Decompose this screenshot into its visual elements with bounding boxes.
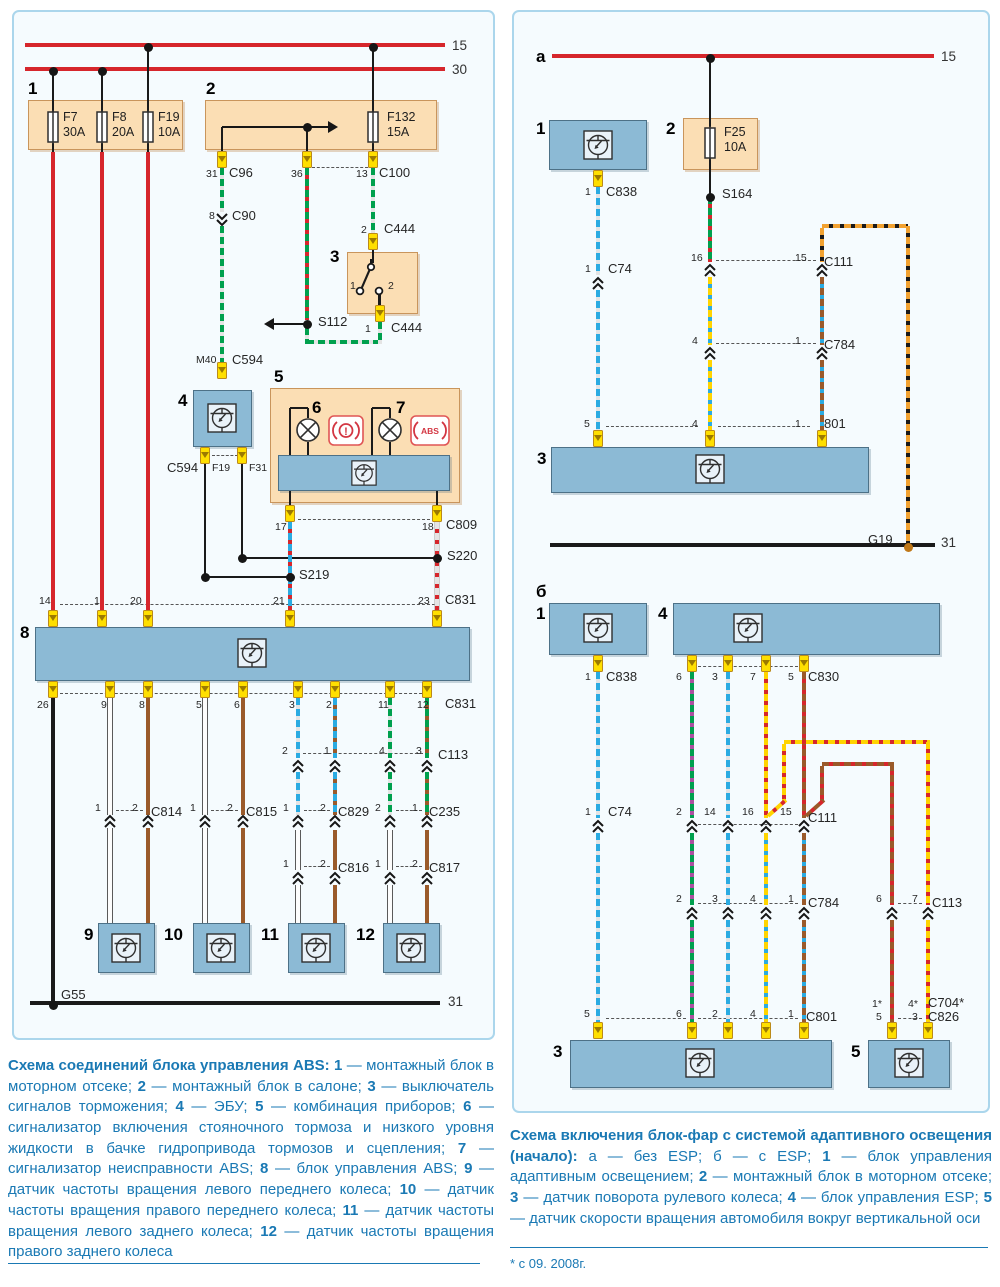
wire-cyan-white xyxy=(726,833,730,905)
wire-brown xyxy=(146,828,150,923)
inline-connector-icon xyxy=(884,905,900,921)
component-box xyxy=(683,118,758,170)
label-4: 4 xyxy=(692,336,698,348)
wire-brown-red xyxy=(890,764,894,905)
label-1: 1 xyxy=(788,894,794,906)
wire-ww xyxy=(295,830,301,870)
label-13: 13 xyxy=(356,169,368,181)
inline-connector-icon xyxy=(290,813,306,829)
label-10A: 10A xyxy=(724,141,746,155)
label-6: 6 xyxy=(676,672,682,684)
label-F8: F8 xyxy=(112,111,127,125)
label-14: 14 xyxy=(39,596,51,608)
label-4: 4 xyxy=(379,746,385,758)
warn1-icon: ! xyxy=(328,415,364,446)
wire-ww xyxy=(202,828,208,923)
label-C784: C784 xyxy=(824,338,855,352)
label-3: 3 xyxy=(537,450,546,469)
label-C100: C100 xyxy=(379,166,410,180)
connector-pin xyxy=(799,1022,809,1039)
wire-cyan-white xyxy=(726,920,730,1022)
label-C444: C444 xyxy=(384,222,415,236)
connector-pin xyxy=(687,1022,697,1039)
label-1: 1 xyxy=(585,187,591,199)
connector-pin xyxy=(97,610,107,627)
right-caption-rule xyxy=(510,1247,988,1248)
wire-red xyxy=(25,67,445,71)
wire-yellow-cyan xyxy=(708,360,712,430)
wire-yellow-cyan xyxy=(708,277,712,345)
connector-dash-line xyxy=(396,810,422,811)
connector-pin xyxy=(687,655,697,672)
wire-green-purple xyxy=(690,833,694,905)
connector-pin xyxy=(923,1022,933,1039)
label-31: 31 xyxy=(206,169,218,181)
wire-yellow-red xyxy=(782,744,786,802)
inline-connector-icon xyxy=(702,262,718,278)
label-1: 1 xyxy=(94,596,100,608)
unit-box xyxy=(673,603,940,655)
inline-connector-icon xyxy=(758,818,774,834)
label-3: 3 xyxy=(289,700,295,712)
wire-cyan-brown xyxy=(333,772,337,815)
connector-dash-line xyxy=(298,519,430,520)
label-6: 6 xyxy=(234,700,240,712)
junction-dot xyxy=(433,554,442,563)
wire-thin xyxy=(289,491,291,505)
connector-pin xyxy=(723,655,733,672)
connector-dash-line xyxy=(396,866,422,867)
label-4: 4 xyxy=(750,1009,756,1021)
connector-dash-line xyxy=(606,1018,686,1019)
label-10A: 10A xyxy=(158,126,180,140)
label-16: 16 xyxy=(691,253,703,265)
wire-thin xyxy=(372,407,390,409)
label-30: 30 xyxy=(452,63,467,78)
junction-dot xyxy=(286,573,295,582)
label-C815: C815 xyxy=(246,805,277,819)
connector-dash-line xyxy=(898,1018,922,1019)
junction-dot xyxy=(369,43,378,52)
connector-dash-line xyxy=(898,903,922,904)
connector-pin xyxy=(285,610,295,627)
label-S220: S220 xyxy=(447,549,477,563)
wire-brown xyxy=(333,830,337,870)
label-G19: G19 xyxy=(868,533,893,547)
label-15: 15 xyxy=(452,39,467,54)
wire-green-purple xyxy=(690,672,694,818)
inline-connector-icon xyxy=(419,758,435,774)
label-4: 4 xyxy=(178,392,187,411)
right-panel xyxy=(512,10,990,1113)
wire-cyan-white xyxy=(596,672,600,818)
connector-pin xyxy=(238,681,248,698)
label-3: 3 xyxy=(553,1043,562,1062)
inline-connector-icon xyxy=(590,818,606,834)
wire-brown xyxy=(241,698,245,815)
wire-brown-red xyxy=(820,766,824,802)
label-6: 6 xyxy=(312,399,321,418)
wire-green-white xyxy=(378,322,382,344)
label-5: 5 xyxy=(196,700,202,712)
connector-pin xyxy=(200,681,210,698)
connector-pin xyxy=(217,362,227,379)
connector-dash-line xyxy=(211,810,238,811)
wire-ww xyxy=(202,698,208,815)
wire-green-purple xyxy=(690,920,694,1022)
ecu-icon xyxy=(396,933,426,963)
label-F19: F19 xyxy=(212,463,230,475)
wire-red xyxy=(100,152,104,612)
page: !ABS153031123456789101112F730AF820AF1910… xyxy=(0,0,1000,1287)
connector-dash-line xyxy=(303,753,423,754)
label-11: 11 xyxy=(261,926,279,945)
wire-thin xyxy=(221,127,223,152)
connector-pin xyxy=(385,681,395,698)
label-3: 3 xyxy=(330,248,339,267)
wire-thin xyxy=(147,47,149,112)
label-15: 15 xyxy=(780,807,792,819)
label-5: 5 xyxy=(876,1012,882,1024)
connector-pin xyxy=(302,151,312,168)
label-C96: C96 xyxy=(229,166,253,180)
connector-pin xyxy=(143,610,153,627)
label-5: 5 xyxy=(851,1043,860,1062)
inline-connector-icon xyxy=(382,758,398,774)
label-31: 31 xyxy=(941,536,956,551)
fuse-icon xyxy=(95,110,109,144)
label-23: 23 xyxy=(418,596,430,608)
connector-pin xyxy=(375,305,385,322)
label-1: 1 xyxy=(585,672,591,684)
ecu-icon xyxy=(695,454,725,484)
label-2: 2 xyxy=(676,807,682,819)
inline-connector-icon xyxy=(720,905,736,921)
connector-dash-line xyxy=(60,604,435,605)
label-5: 5 xyxy=(584,419,590,431)
label-801: 801 xyxy=(824,417,846,431)
wire-brown xyxy=(241,828,245,923)
ecu-icon xyxy=(111,933,141,963)
label-14: 14 xyxy=(704,807,716,819)
label-31: 31 xyxy=(448,995,463,1010)
wire-thin xyxy=(371,408,373,455)
wire-thin xyxy=(289,408,291,455)
connector-pin xyxy=(105,681,115,698)
inline-connector-icon xyxy=(102,813,118,829)
label-12: 12 xyxy=(417,700,429,712)
label-C838: C838 xyxy=(606,670,637,684)
label-15: 15 xyxy=(941,50,956,65)
label-2: 2 xyxy=(388,281,394,293)
label-C113: C113 xyxy=(932,896,962,910)
label-6: 6 xyxy=(676,1009,682,1021)
wire-green-white xyxy=(388,772,392,815)
label-2: 2 xyxy=(326,700,332,712)
wire-cyan-white xyxy=(726,672,730,818)
label-1: 1 xyxy=(190,803,196,815)
connector-pin xyxy=(422,681,432,698)
junction-dot xyxy=(706,193,715,202)
wire-green-red xyxy=(708,197,712,262)
connector-pin xyxy=(48,681,58,698)
connector-dash-line xyxy=(304,810,330,811)
label-1: 1 xyxy=(788,1009,794,1021)
wire-brown-red xyxy=(890,920,894,1022)
connector-dash-line xyxy=(716,343,816,344)
ecu-icon xyxy=(583,613,613,643)
wire-thin xyxy=(389,442,391,455)
inline-connector-icon xyxy=(382,870,398,886)
label-C801: C801 xyxy=(806,1010,837,1024)
label-2: 2 xyxy=(320,859,326,871)
label-5: 5 xyxy=(788,672,794,684)
wire-thin xyxy=(709,58,711,127)
label-2: 2 xyxy=(206,80,215,99)
wire-green-white xyxy=(220,226,224,362)
label-1: 1 xyxy=(283,859,289,871)
junction-dot xyxy=(303,123,312,132)
wire-thin xyxy=(709,158,711,197)
junction-dot xyxy=(49,67,58,76)
connector-pin xyxy=(217,151,227,168)
ecu-icon xyxy=(583,130,613,160)
fuse-icon xyxy=(46,110,60,144)
label-C74: C74 xyxy=(608,805,632,819)
label-2: 2 xyxy=(132,803,138,815)
ecu-icon xyxy=(894,1048,924,1078)
left-caption: Схема соединений блока управления ABS: 1… xyxy=(8,1056,494,1263)
label-11: 11 xyxy=(378,700,389,712)
connector-pin xyxy=(887,1022,897,1039)
label-15: 15 xyxy=(795,253,807,265)
wire-brown-cyan xyxy=(802,833,806,905)
inline-connector-icon xyxy=(197,813,213,829)
wire-cyan-white xyxy=(296,698,300,758)
wire-thin xyxy=(52,71,54,112)
connector-dash-line xyxy=(606,426,698,427)
ecu-icon xyxy=(685,1048,715,1078)
label-C111: C111 xyxy=(824,255,853,269)
label-2: 2 xyxy=(282,746,288,758)
label-2: 2 xyxy=(676,894,682,906)
label-F31: F31 xyxy=(249,463,267,475)
label-G55: G55 xyxy=(61,988,86,1002)
label-3: 3 xyxy=(712,672,718,684)
connector-pin xyxy=(761,655,771,672)
label-1: 1 xyxy=(324,746,330,758)
inline-connector-icon xyxy=(290,758,306,774)
label-2: 2 xyxy=(412,859,418,871)
left-arrow-icon xyxy=(264,318,274,330)
label-2: 2 xyxy=(712,1009,718,1021)
wire-brown xyxy=(146,698,150,815)
label-20A: 20A xyxy=(112,126,134,140)
junction-dot xyxy=(303,320,312,329)
wire-cyan-white xyxy=(296,772,300,815)
label-S112: S112 xyxy=(318,315,347,329)
label-17: 17 xyxy=(275,522,287,534)
connector-pin xyxy=(705,430,715,447)
label-2: 2 xyxy=(227,803,233,815)
svg-text:!: ! xyxy=(344,426,348,438)
connector-pin xyxy=(593,655,603,672)
wire-green-white xyxy=(307,340,380,344)
connector-pin xyxy=(48,610,58,627)
label-1: 1* xyxy=(872,999,882,1011)
wire-thin xyxy=(290,407,308,409)
inline-connector-icon xyxy=(327,758,343,774)
connector-pin xyxy=(723,1022,733,1039)
connector-dash-line xyxy=(212,455,238,456)
fuse-icon xyxy=(141,110,155,144)
wire-black xyxy=(51,698,55,1005)
label-4: 4 xyxy=(750,894,756,906)
connector-pin xyxy=(237,447,247,464)
inline-connector-icon xyxy=(720,818,736,834)
inline-connector-icon xyxy=(290,870,306,886)
label-1: 1 xyxy=(95,803,101,815)
inline-connector-icon xyxy=(382,813,398,829)
junction-dot xyxy=(904,543,913,552)
wire-ww xyxy=(387,830,393,870)
wire-thin xyxy=(147,143,149,152)
wire-thin xyxy=(101,71,103,112)
ecu-icon xyxy=(237,638,267,668)
wire-thin xyxy=(101,143,103,152)
wire-red xyxy=(552,54,934,58)
label-12: 12 xyxy=(356,926,375,945)
label-10: 10 xyxy=(164,926,183,945)
label-S219: S219 xyxy=(299,568,329,582)
label-1: 1 xyxy=(795,336,801,348)
connector-pin xyxy=(293,681,303,698)
connector-pin xyxy=(143,681,153,698)
label-2: 2 xyxy=(666,120,675,139)
inline-connector-icon xyxy=(684,818,700,834)
arrow-line xyxy=(272,323,307,325)
wire-brown-red xyxy=(822,762,894,766)
inline-connector-icon xyxy=(590,275,606,291)
wire-brown xyxy=(333,885,337,923)
wire-red xyxy=(146,152,150,612)
wire-thin xyxy=(436,491,438,505)
ecu-icon xyxy=(207,403,237,433)
wire-red xyxy=(25,43,445,47)
connector-dash-line xyxy=(304,866,330,867)
warn2-icon: ABS xyxy=(410,415,450,446)
label-C814: C814 xyxy=(151,805,182,819)
junction-dot xyxy=(238,554,247,563)
inline-connector-icon xyxy=(214,212,230,228)
connector-pin xyxy=(368,151,378,168)
label-C831: C831 xyxy=(445,697,476,711)
label-1: 1 xyxy=(283,803,289,815)
label-5: 5 xyxy=(584,1009,590,1021)
wire-brown-cyan xyxy=(820,277,824,345)
label-C826: C826 xyxy=(928,1010,959,1024)
wire-thin xyxy=(52,143,54,152)
label-C90: C90 xyxy=(232,209,256,223)
junction-dot xyxy=(201,573,210,582)
wire-thin xyxy=(241,464,243,558)
connector-dash-line xyxy=(698,824,798,825)
junction-dot xyxy=(49,1001,58,1010)
label-18: 18 xyxy=(422,522,434,534)
label-8: 8 xyxy=(139,700,145,712)
wire-cyan-red xyxy=(288,522,292,612)
junction-dot xyxy=(144,43,153,52)
connector-pin xyxy=(432,505,442,522)
connector-pin xyxy=(330,681,340,698)
wire-yellow-red xyxy=(784,740,930,744)
label-1: 1 xyxy=(585,264,591,276)
label-8: 8 xyxy=(209,211,215,223)
wire-yellow-red xyxy=(926,742,930,905)
right-arrow-icon xyxy=(328,121,338,133)
label-1: 1 xyxy=(536,605,545,624)
label-15A: 15A xyxy=(387,126,409,140)
label-1: 1 xyxy=(795,419,801,431)
label-C113: C113 xyxy=(438,748,468,762)
wire-thin xyxy=(307,442,309,455)
label-5: 5 xyxy=(274,368,283,387)
label-C831: C831 xyxy=(445,593,476,607)
inline-connector-icon xyxy=(758,905,774,921)
label-36: 36 xyxy=(291,169,303,181)
label-2: 2 xyxy=(361,225,367,237)
label-4: 4 xyxy=(658,605,667,624)
wire-orange-black xyxy=(906,226,910,547)
label-C444: C444 xyxy=(391,321,422,335)
label-30A: 30A xyxy=(63,126,85,140)
label-C816: C816 xyxy=(338,861,369,875)
right-caption: Схема включения блок-фар с системой адап… xyxy=(510,1126,992,1229)
ecu-icon xyxy=(733,613,763,643)
wire-ww xyxy=(107,828,113,923)
label-F19: F19 xyxy=(158,111,180,125)
connector-dash-line xyxy=(116,810,143,811)
wire-orange-black xyxy=(822,224,908,228)
wire-ww xyxy=(107,698,113,815)
label-1: 1 xyxy=(536,120,545,139)
label-16: 16 xyxy=(742,807,754,819)
label-1: 1 xyxy=(365,324,371,336)
ecu-icon xyxy=(301,933,331,963)
label-C235: C235 xyxy=(429,805,460,819)
arrow-line xyxy=(222,126,330,128)
wire-yellow-cyan xyxy=(764,920,768,1022)
wire-yellow-red xyxy=(764,672,768,818)
label-S164: S164 xyxy=(722,187,752,201)
label-7: 7 xyxy=(750,672,756,684)
wire-thin xyxy=(372,47,374,112)
label-C111: C111 xyxy=(808,811,837,825)
wire-thin xyxy=(204,464,206,577)
wire-brown-cyan xyxy=(802,920,806,1022)
left-caption-rule xyxy=(8,1263,480,1264)
label-1: 1 xyxy=(412,803,418,815)
label-C594: C594 xyxy=(232,353,263,367)
label-4: 4* xyxy=(908,999,918,1011)
wire-green-white xyxy=(371,168,375,233)
label-9: 9 xyxy=(101,700,107,712)
label-2: 2 xyxy=(320,803,326,815)
lamp-icon xyxy=(295,417,321,443)
label-3: 3 xyxy=(712,894,718,906)
connector-pin xyxy=(593,1022,603,1039)
label-1: 1 xyxy=(28,80,37,99)
